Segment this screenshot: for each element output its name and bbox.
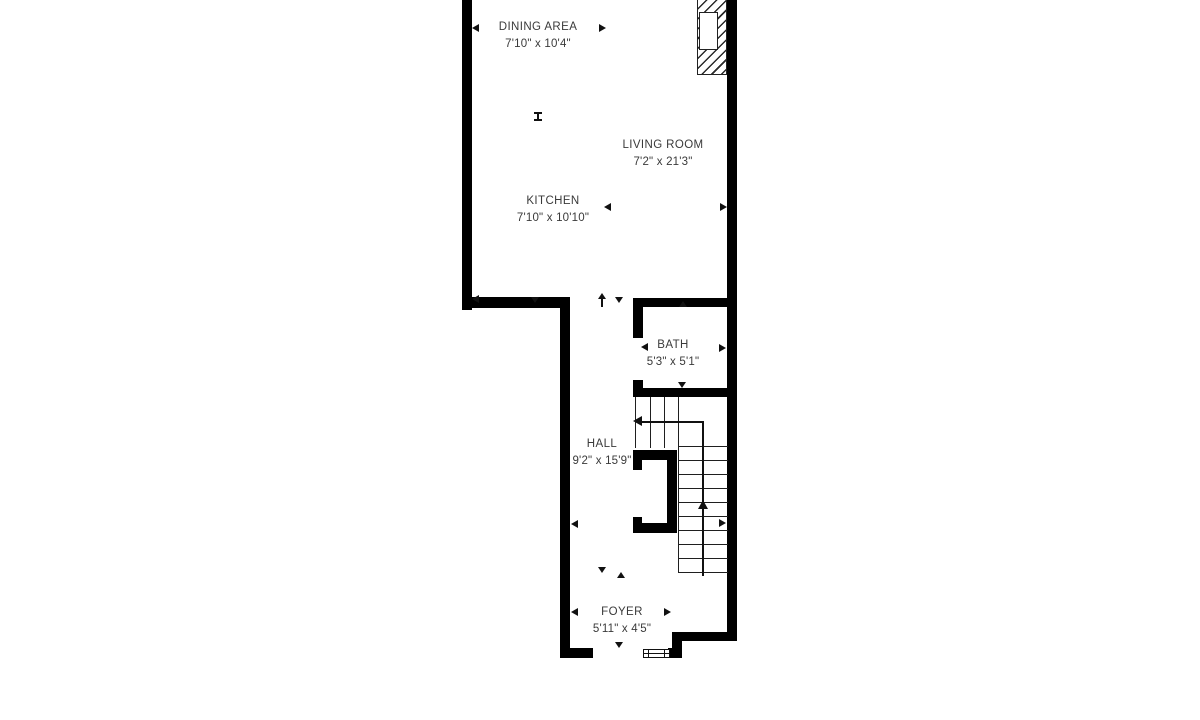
dim-arrow-kitchen-left-icon [472,295,479,303]
wall-closet-left-lower [633,517,642,533]
stair-tread [650,397,651,448]
dim-arrow-dining-left-icon [472,24,479,32]
room-label-dining: DINING AREA 7'10" x 10'4" [499,19,578,53]
stair-divider [678,397,679,573]
stair-direction-line-vertical [702,421,704,576]
room-name: DINING AREA [499,19,578,36]
room-dimensions: 7'10" x 10'10" [517,210,589,227]
stair-base-marker-up-icon [617,572,625,578]
stair-direction-line-horizontal [640,421,703,423]
stair-tread [679,446,728,447]
hall-opening-marker-up-icon [598,293,606,299]
hall-opening-marker-stem [601,299,603,307]
entry-door-marker-down-icon [615,642,623,648]
dim-arrow-bath-down-icon [678,382,686,388]
room-dimensions: 5'11" x 4'5" [593,621,651,638]
dim-arrow-living-right-icon [720,203,727,211]
dim-arrow-kitchen-down-icon [531,297,539,303]
dim-arrow-living-left-icon [604,203,611,211]
stair-tread [679,474,728,475]
room-name: HALL [572,436,631,453]
wall-right [727,0,737,641]
room-name: LIVING ROOM [622,137,703,154]
stair-tread [664,397,665,448]
room-dimensions: 9'2" x 15'9" [572,453,631,470]
entry-door [643,649,670,658]
stair-tread [679,544,728,545]
room-name: FOYER [593,604,651,621]
wall-foyer-bottom [560,648,593,658]
stair-tread [679,558,728,559]
dim-marker-stem [537,114,539,119]
dim-arrow-bath-up-icon [679,301,687,307]
dim-marker-dining-icon [534,112,542,121]
stair-tread [679,530,728,531]
room-label-kitchen: KITCHEN 7'10" x 10'10" [517,193,589,227]
room-label-bath: BATH 5'3" x 5'1" [647,337,699,371]
hall-opening-marker-down-icon [615,297,623,303]
wall-closet-right [667,450,677,533]
room-label-hall: HALL 9'2" x 15'9" [572,436,631,470]
room-dimensions: 5'3" x 5'1" [647,354,699,371]
room-name: BATH [647,337,699,354]
wall-hall-left [560,297,570,658]
dim-arrow-foyer-right-icon [664,608,671,616]
firebox [699,12,718,50]
room-name: KITCHEN [517,193,589,210]
dim-arrow-dining-right-icon [599,24,606,32]
entry-door-jamb-left [648,650,649,657]
dim-arrow-foyer-left-icon [571,608,578,616]
stair-base-marker-down-icon [598,567,606,573]
entry-door-jamb-right [664,650,665,657]
stair-tread [679,516,728,517]
room-dimensions: 7'2" x 21'3" [622,154,703,171]
fireplace-hatch [697,0,727,75]
stair-tread [679,572,728,573]
stair-up-arrow-icon [698,500,708,509]
stair-direction-arrow-icon [633,416,642,426]
wall-left [462,0,472,310]
wall-bottom-right [672,632,737,641]
stair-tread [679,488,728,489]
dim-arrow-bath-right-icon [719,344,726,352]
wall-bath-bottom [633,388,737,397]
dim-arrow-hall-left-icon [571,520,578,528]
wall-closet-left-upper [633,450,642,470]
room-label-foyer: FOYER 5'11" x 4'5" [593,604,651,638]
dim-arrow-hall-right-icon [719,519,726,527]
room-dimensions: 7'10" x 10'4" [499,36,578,53]
wall-foyer-right-vertical [672,638,682,658]
room-label-living: LIVING ROOM 7'2" x 21'3" [622,137,703,171]
stair-tread [679,460,728,461]
floor-plan: DINING AREA 7'10" x 10'4" LIVING ROOM 7'… [0,0,1200,720]
wall-bath-left-upper [633,298,643,338]
